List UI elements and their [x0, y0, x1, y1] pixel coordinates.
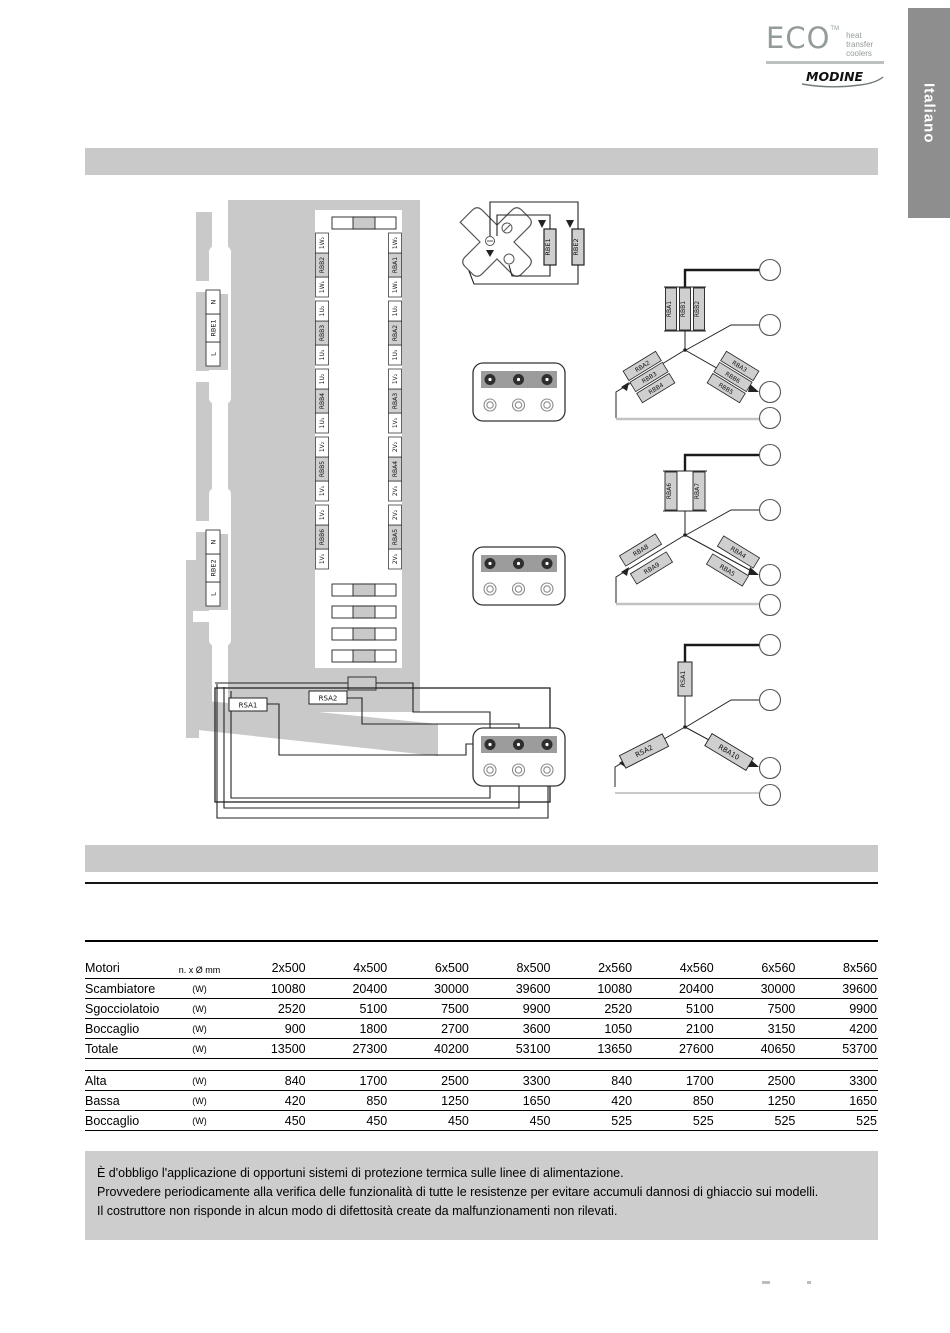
svg-text:1V₁: 1V₁: [319, 553, 326, 564]
svg-text:RBB4: RBB4: [319, 393, 326, 409]
supply-label-rbe2: L RBE2 N: [206, 530, 220, 606]
svg-text:L: L: [209, 592, 217, 596]
table-row: Boccaglio (W) 900 1800 2700 3600 1050 21…: [85, 1019, 878, 1039]
svg-text:RBA6: RBA6: [666, 483, 673, 499]
svg-text:2V₂: 2V₂: [392, 509, 399, 520]
note-box: È d'obbligo l'applicazione di opportuni …: [85, 1151, 878, 1240]
svg-text:1U₁: 1U₁: [392, 349, 399, 360]
svg-text:RSA1: RSA1: [680, 671, 687, 688]
terminal-block-2: [473, 547, 565, 605]
svg-text:RBA4: RBA4: [392, 461, 399, 477]
svg-text:1W₂: 1W₂: [319, 236, 326, 249]
svg-text:RBA3: RBA3: [392, 393, 399, 409]
svg-text:RBE1: RBE1: [544, 238, 552, 255]
manual-page: ECOTM heat transfer coolers MODINE Itali…: [0, 0, 950, 1333]
svg-text:1U₁: 1U₁: [319, 417, 326, 428]
svg-text:RBB2: RBB2: [694, 301, 701, 317]
heater-resistor-rbe1: RBE1: [544, 229, 556, 265]
terminal-block-1: [473, 363, 565, 421]
svg-text:RBB3: RBB3: [319, 325, 326, 341]
speed-table: Alta (W) 840 1700 2500 3300 840 1700 250…: [85, 1070, 878, 1131]
table-row: Motori n. x Ø mm 2x500 4x500 6x500 8x500…: [85, 940, 878, 979]
arrow-icon: [566, 220, 574, 228]
note-line: È d'obbligo l'applicazione di opportuni …: [97, 1164, 866, 1183]
drip-tray-resistor-rsa2: RSA2: [309, 691, 347, 704]
svg-text:1U₂: 1U₂: [392, 305, 399, 316]
heater-resistor-rbe2: RBE2: [572, 229, 584, 265]
svg-text:1U₁: 1U₁: [319, 349, 326, 360]
section-header-bar-tables: [85, 845, 878, 872]
svg-text:RBA5: RBA5: [392, 529, 399, 545]
svg-text:1W₁: 1W₁: [319, 280, 326, 293]
svg-text:1W₂: 1W₂: [392, 236, 399, 249]
svg-text:RBE2: RBE2: [572, 238, 580, 255]
supply-label-rbe1: L RBE1 N: [206, 290, 220, 366]
svg-text:1V₁: 1V₁: [392, 417, 399, 428]
table-row: Boccaglio (W) 450 450 450 450 525 525 52…: [85, 1111, 878, 1131]
svg-text:N: N: [209, 299, 217, 304]
table-row: Scambiatore (W) 10080 20400 30000 39600 …: [85, 979, 878, 999]
svg-text:1V₂: 1V₂: [319, 441, 326, 452]
svg-text:1V₂: 1V₂: [319, 509, 326, 520]
star-group-1: RBA1 RBB1 RBB2 RBA2 RBB3 RBB4: [616, 260, 781, 429]
svg-text:1V₁: 1V₁: [319, 485, 326, 496]
svg-text:1U₂: 1U₂: [319, 305, 326, 316]
svg-text:RSA2: RSA2: [319, 695, 338, 703]
svg-text:L: L: [209, 352, 217, 356]
svg-text:RBA7: RBA7: [694, 483, 701, 499]
table-row: Sgocciolatoio (W) 2520 5100 7500 9900 25…: [85, 999, 878, 1019]
star-group-3: RSA1 RSA2 RBA10: [615, 635, 781, 806]
horizontal-rule: [85, 882, 878, 884]
footer-speck: [762, 1281, 770, 1284]
svg-text:N: N: [209, 539, 217, 544]
svg-text:2V₂: 2V₂: [392, 441, 399, 452]
svg-text:1V₂: 1V₂: [392, 373, 399, 384]
svg-text:RSA1: RSA1: [239, 702, 258, 710]
svg-text:RBB2: RBB2: [319, 257, 326, 273]
star-group-2: RBA6 RBA7 RBA8 RBA9 RBA4 RBA5: [616, 445, 781, 616]
svg-text:2V₁: 2V₁: [392, 485, 399, 496]
svg-text:RBB6: RBB6: [319, 529, 326, 545]
wiring-diagram: L RBE1 N L RBE2 N 1W₁RBB21W₂ 1U₁RBB31U₂ …: [0, 0, 950, 840]
unit-right-terminal-labels: 1W₁RBA11W₂ 1U₁RBA21U₂ 1V₁RBA31V₂ 2V₁RBA4…: [389, 233, 402, 569]
svg-text:2V₁: 2V₁: [392, 553, 399, 564]
svg-text:1U₂: 1U₂: [319, 373, 326, 384]
svg-text:RBB5: RBB5: [319, 461, 326, 477]
drip-tray-resistor-rsa1: RSA1: [229, 698, 267, 711]
svg-text:RBE1: RBE1: [209, 319, 217, 336]
terminal-block-3: [473, 728, 565, 786]
note-line: Il costruttore non risponde in alcun mod…: [97, 1202, 866, 1221]
arrow-icon: [538, 220, 546, 228]
svg-text:RBA2: RBA2: [392, 325, 399, 341]
footer-speck: [807, 1281, 811, 1284]
note-line: Provvedere periodicamente alla verifica …: [97, 1183, 866, 1202]
power-table: Motori n. x Ø mm 2x500 4x500 6x500 8x500…: [85, 940, 878, 1059]
table-row: Alta (W) 840 1700 2500 3300 840 1700 250…: [85, 1070, 878, 1091]
svg-text:RBA1: RBA1: [392, 257, 399, 273]
svg-text:1W₁: 1W₁: [392, 280, 399, 293]
svg-text:RBA1: RBA1: [666, 301, 673, 317]
svg-text:RBB1: RBB1: [680, 301, 687, 317]
svg-text:RBE2: RBE2: [209, 559, 217, 576]
unit-left-terminal-labels: 1W₁RBB21W₂ 1U₁RBB31U₂ 1U₁RBB41U₂ 1V₁RBB5…: [316, 233, 329, 569]
table-row: Totale (W) 13500 27300 40200 53100 13650…: [85, 1039, 878, 1059]
table-row: Bassa (W) 420 850 1250 1650 420 850 1250…: [85, 1091, 878, 1111]
